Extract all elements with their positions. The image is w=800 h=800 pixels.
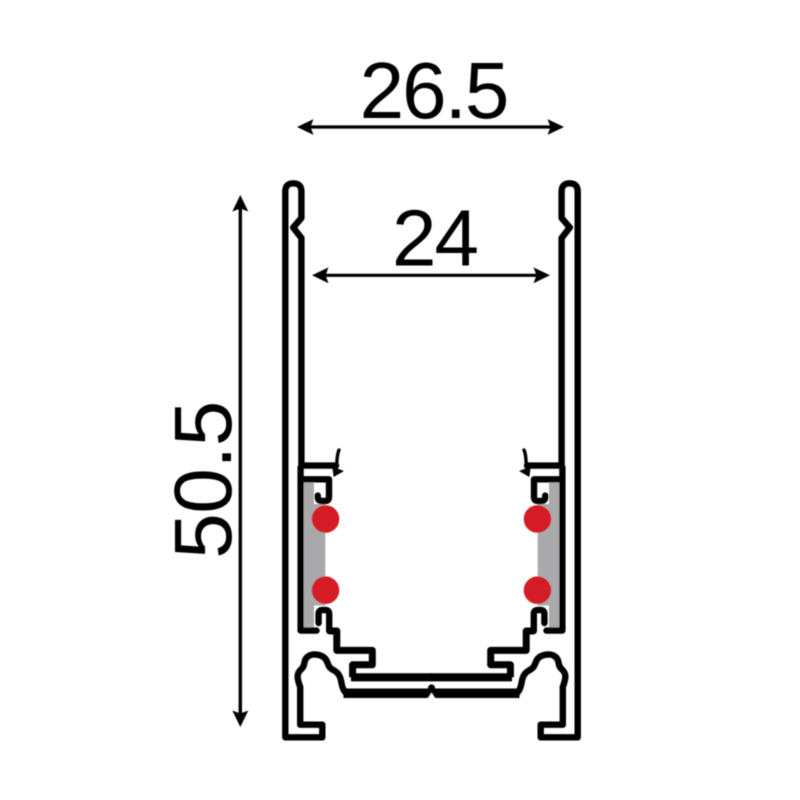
svg-text:24: 24 [392,194,477,283]
svg-text:26.5: 26.5 [360,46,508,135]
svg-text:50.5: 50.5 [158,401,249,559]
